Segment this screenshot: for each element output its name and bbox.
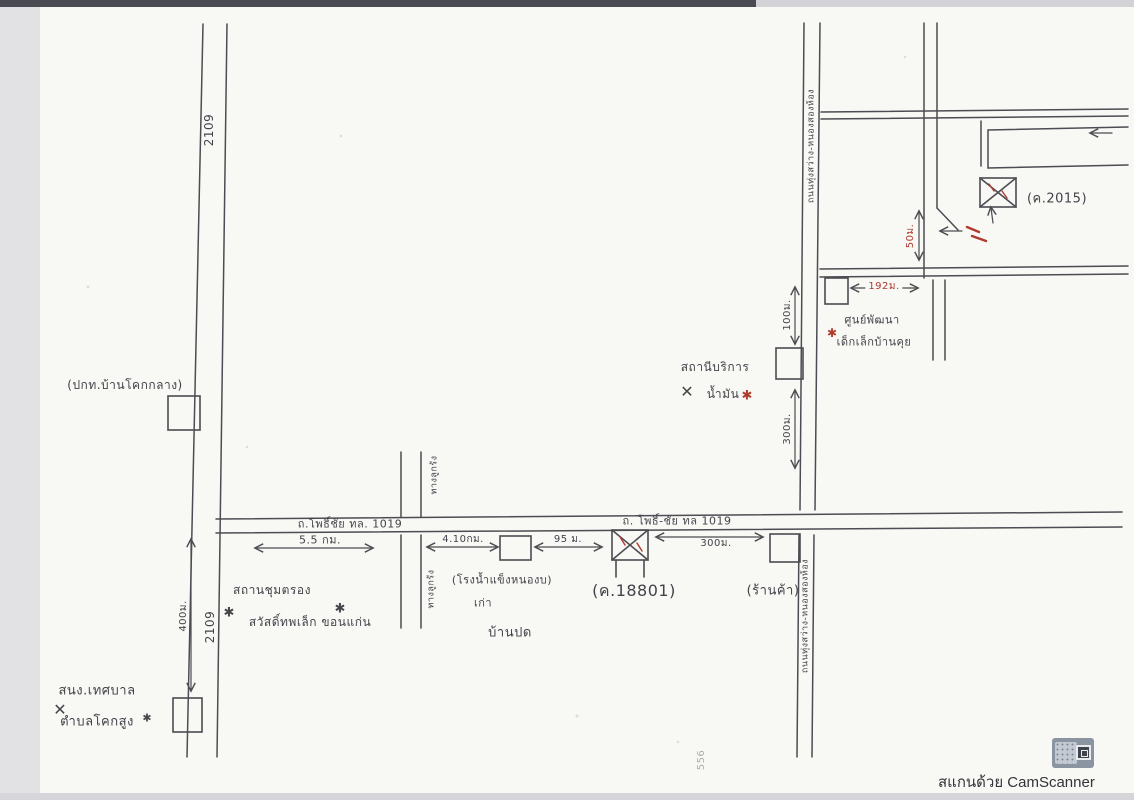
cross-mark-gas-station: ✕	[680, 384, 693, 400]
distance-300m-vertical: 300ม.	[783, 413, 793, 444]
building-outline-roada	[776, 348, 803, 379]
distance-100m: 100ม.	[783, 299, 793, 330]
label-municipal-office-1: สนง.เทศบาล	[58, 685, 135, 698]
red-pen-scribble	[967, 227, 986, 241]
road-a-name-bottom: ถนนทุ่งสว่าง-หนองสองห้อง	[802, 559, 811, 673]
building-outline-shop	[770, 534, 800, 562]
scanned-map-page: 2109 2109 400ม. (ปกท.บ้านโคกกลาง) สนง.เท…	[0, 0, 1134, 800]
landmark-marker-box	[980, 178, 1016, 207]
camscanner-icon-badge	[1076, 745, 1091, 760]
route-label-2109-bottom: 2109	[204, 611, 216, 644]
distance-5-5km: 5.5 กม.	[299, 535, 341, 546]
label-gas-station-1: สถานีบริการ	[681, 361, 750, 373]
red-ticks-landmark	[989, 184, 1007, 198]
camscanner-watermark-text: สแกนด้วย CamScanner	[938, 770, 1095, 794]
label-municipal-office-2: ตำบลโคกสูง	[60, 716, 134, 729]
road-name-phochai-east: ถ. โพธิ์-ชัย ทล 1019	[623, 516, 732, 527]
hand-drawn-map	[0, 0, 1134, 800]
label-police-station: (ปกท.บ้านโคกกลาง)	[67, 379, 182, 391]
minor-gravel-road	[401, 452, 421, 628]
label-checkpoint-1: สถานชุมตรอง	[233, 584, 311, 596]
minor-road-name-bottom: ทางลูกรัง	[428, 569, 437, 608]
distance-400m: 400ม.	[179, 600, 189, 631]
grid-road-north	[821, 109, 1128, 119]
subject-marker-box	[612, 530, 648, 577]
label-gas-station-2: น้ำมัน	[707, 388, 740, 400]
label-village: บ้านปด	[488, 627, 532, 640]
road-a-name-top: ถนนทุ่งสว่าง-หนองสองห้อง	[808, 89, 817, 203]
faint-page-number: 556	[697, 750, 707, 771]
building-outline-icehouse	[500, 536, 531, 560]
distance-50m: 50ม.	[906, 224, 916, 249]
label-icehouse-1: (โรงน้ำแข็งหนองบ)	[452, 575, 552, 586]
distance-300m: 300ม.	[697, 539, 734, 549]
camscanner-icon-document	[1055, 742, 1077, 764]
road-b-vertical	[924, 23, 981, 360]
label-checkpoint-2: สวัสดิ์ทพเล็ก ขอนแก่น	[249, 616, 371, 628]
road-name-phochai-west: ถ.โพธิ์ชัย ทล. 1019	[298, 519, 402, 530]
star-mark-checkpoint-left: ✱	[224, 607, 235, 620]
building-outline-childcenter	[825, 278, 848, 304]
label-shop: (ร้านค้า)	[747, 585, 800, 598]
label-icehouse-2: เก่า	[474, 598, 492, 609]
minor-road-name-top: ทางลูกรัง	[431, 455, 440, 494]
star-mark-municipal: ✱	[142, 713, 151, 724]
distance-192m: 192ม.	[865, 282, 902, 292]
camscanner-icon	[1052, 738, 1094, 768]
star-mark-childcenter-red: ✱	[827, 327, 837, 339]
label-landmark-parcel: (ค.2015)	[1027, 193, 1087, 206]
label-childcare-center-1: ศูนย์พัฒนา	[844, 315, 899, 326]
distance-95m: 95 ม.	[554, 535, 582, 545]
distance-4-10km: 4.10กม.	[442, 535, 484, 545]
pointer-arrow-landmark	[991, 208, 993, 223]
star-mark-gas-station-red: ✱	[742, 390, 753, 403]
label-childcare-center-2: เด็กเล็กบ้านคุย	[837, 337, 912, 348]
label-subject-parcel: (ค.18801)	[592, 583, 676, 599]
cross-mark-municipal: ✕	[53, 702, 66, 718]
grid-road-middle	[820, 266, 1128, 277]
star-mark-checkpoint-right: ✱	[335, 603, 346, 616]
route-label-2109-top: 2109	[203, 114, 215, 147]
